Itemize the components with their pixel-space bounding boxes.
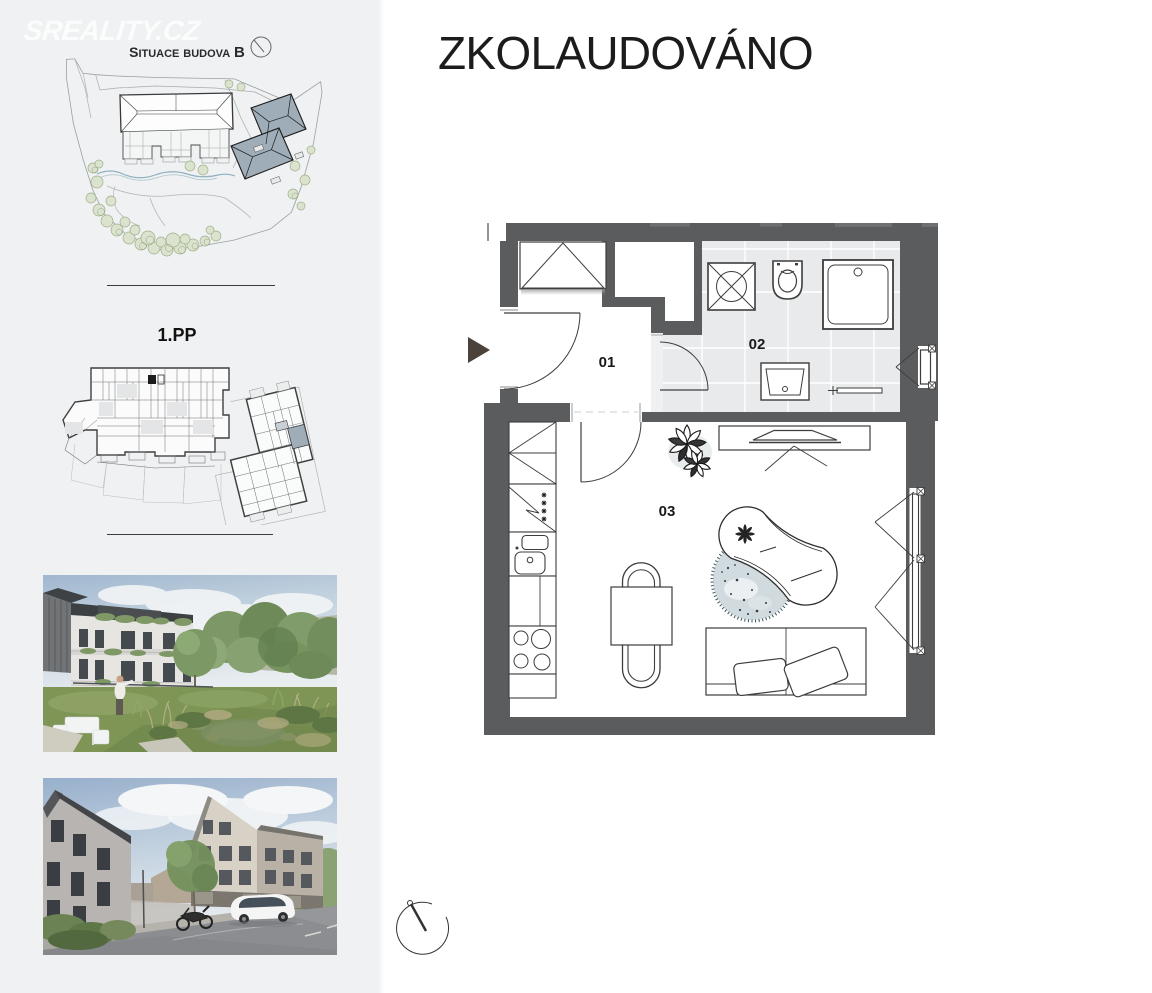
svg-text:03: 03 xyxy=(659,503,676,520)
svg-text:02: 02 xyxy=(749,336,766,353)
svg-text:01: 01 xyxy=(599,354,616,371)
